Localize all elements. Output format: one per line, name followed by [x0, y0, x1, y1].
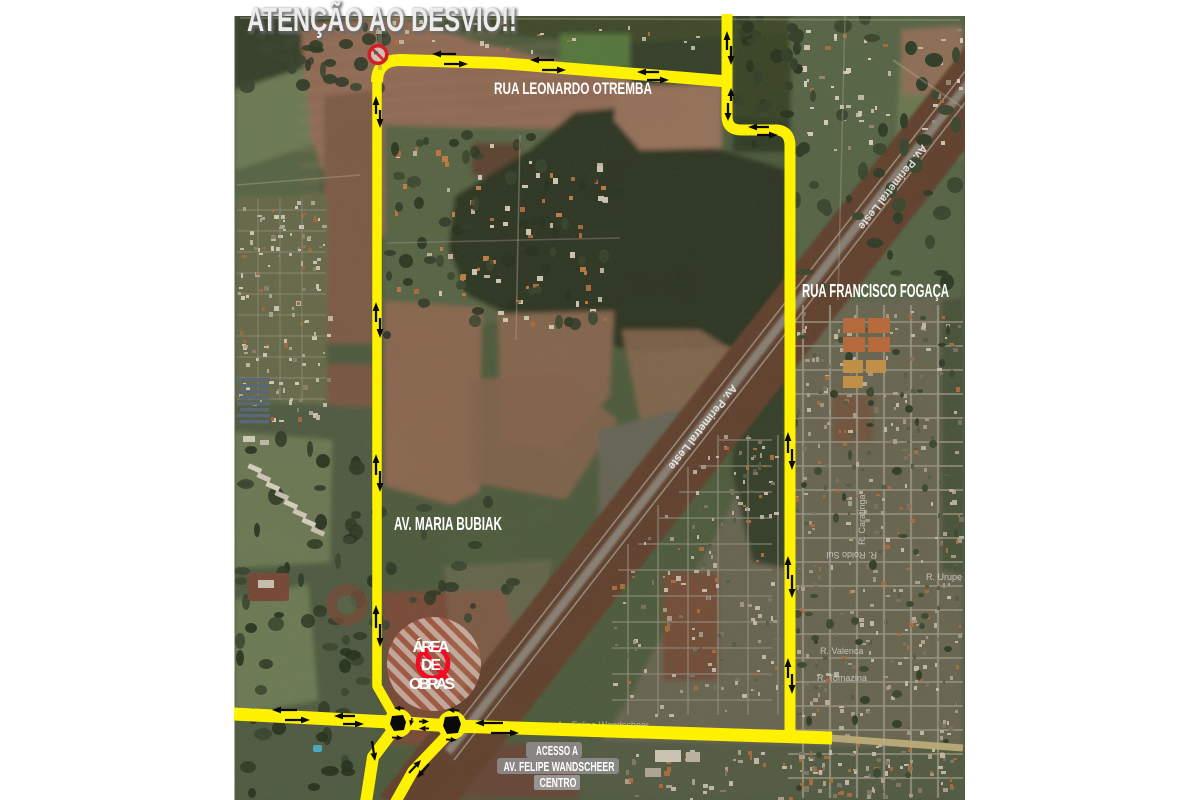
svg-text:ÁREA: ÁREA: [413, 637, 450, 656]
svg-text:R. Roldo Sul: R. Roldo Sul: [826, 550, 877, 560]
svg-text:CENTRO: CENTRO: [540, 775, 577, 790]
svg-text:RUA LEONARDO OTREMBA: RUA LEONARDO OTREMBA: [494, 79, 652, 98]
svg-text:R. Urupe: R. Urupe: [926, 572, 962, 582]
svg-text:AV. MARIA BUBIAK: AV. MARIA BUBIAK: [394, 514, 502, 534]
svg-text:ATENÇÃO AO DESVIO!!: ATENÇÃO AO DESVIO!!: [247, 1, 517, 38]
svg-text:RUA FRANCISCO FOGAÇA: RUA FRANCISCO FOGAÇA: [802, 281, 949, 301]
svg-text:AV. FELIPE WANDSCHEER: AV. FELIPE WANDSCHEER: [504, 759, 615, 774]
svg-text:R. Valenca: R. Valenca: [820, 646, 863, 656]
svg-text:DE: DE: [421, 657, 441, 674]
svg-text:ACESSO A: ACESSO A: [536, 743, 578, 758]
svg-text:R. Caratinga: R. Caratinga: [857, 494, 867, 545]
svg-text:OBRAS: OBRAS: [409, 676, 455, 693]
svg-text:R. Tomazina: R. Tomazina: [817, 673, 867, 683]
